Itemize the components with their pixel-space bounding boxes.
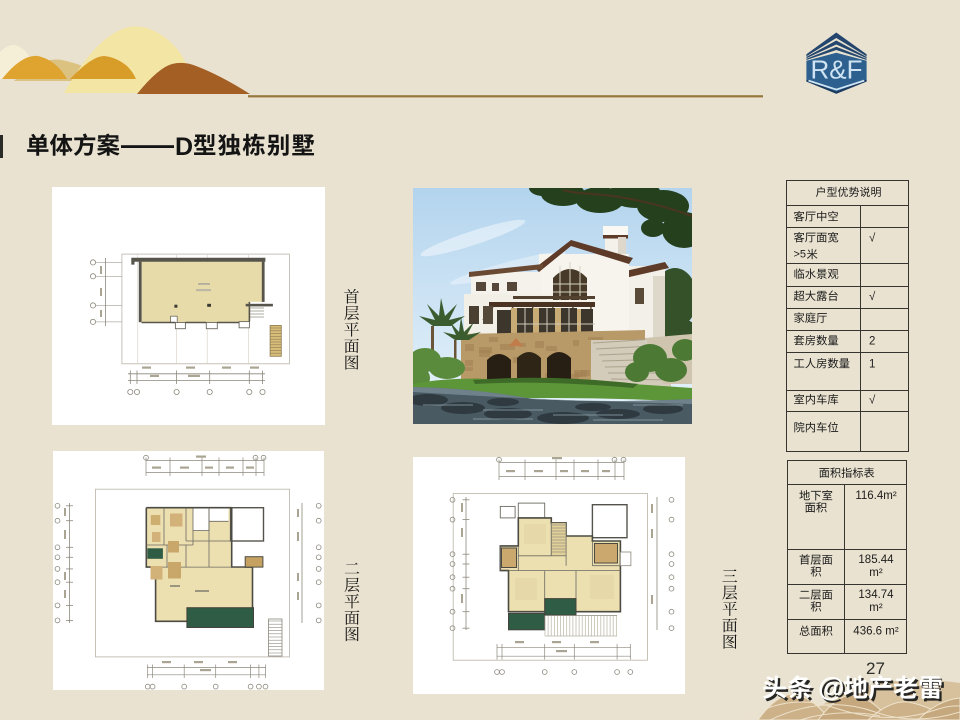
svg-text:@: @: [818, 672, 844, 702]
svg-text:m²: m²: [869, 602, 883, 614]
svg-text:185.44: 185.44: [858, 554, 894, 566]
svg-text:D: D: [175, 133, 193, 161]
svg-text:>5: >5: [794, 249, 807, 261]
svg-text:1: 1: [869, 359, 875, 371]
svg-text:116.4m²: 116.4m²: [855, 490, 897, 502]
svg-text:√: √: [869, 290, 876, 303]
svg-text:27: 27: [866, 659, 885, 678]
svg-text:m²: m²: [869, 567, 883, 579]
svg-text:√: √: [869, 232, 876, 245]
svg-text:R&F: R&F: [811, 55, 863, 85]
svg-text:2: 2: [869, 336, 875, 348]
svg-text:436.6 m²: 436.6 m²: [853, 626, 899, 638]
svg-text:√: √: [869, 394, 876, 407]
svg-text:134.74: 134.74: [858, 589, 894, 601]
